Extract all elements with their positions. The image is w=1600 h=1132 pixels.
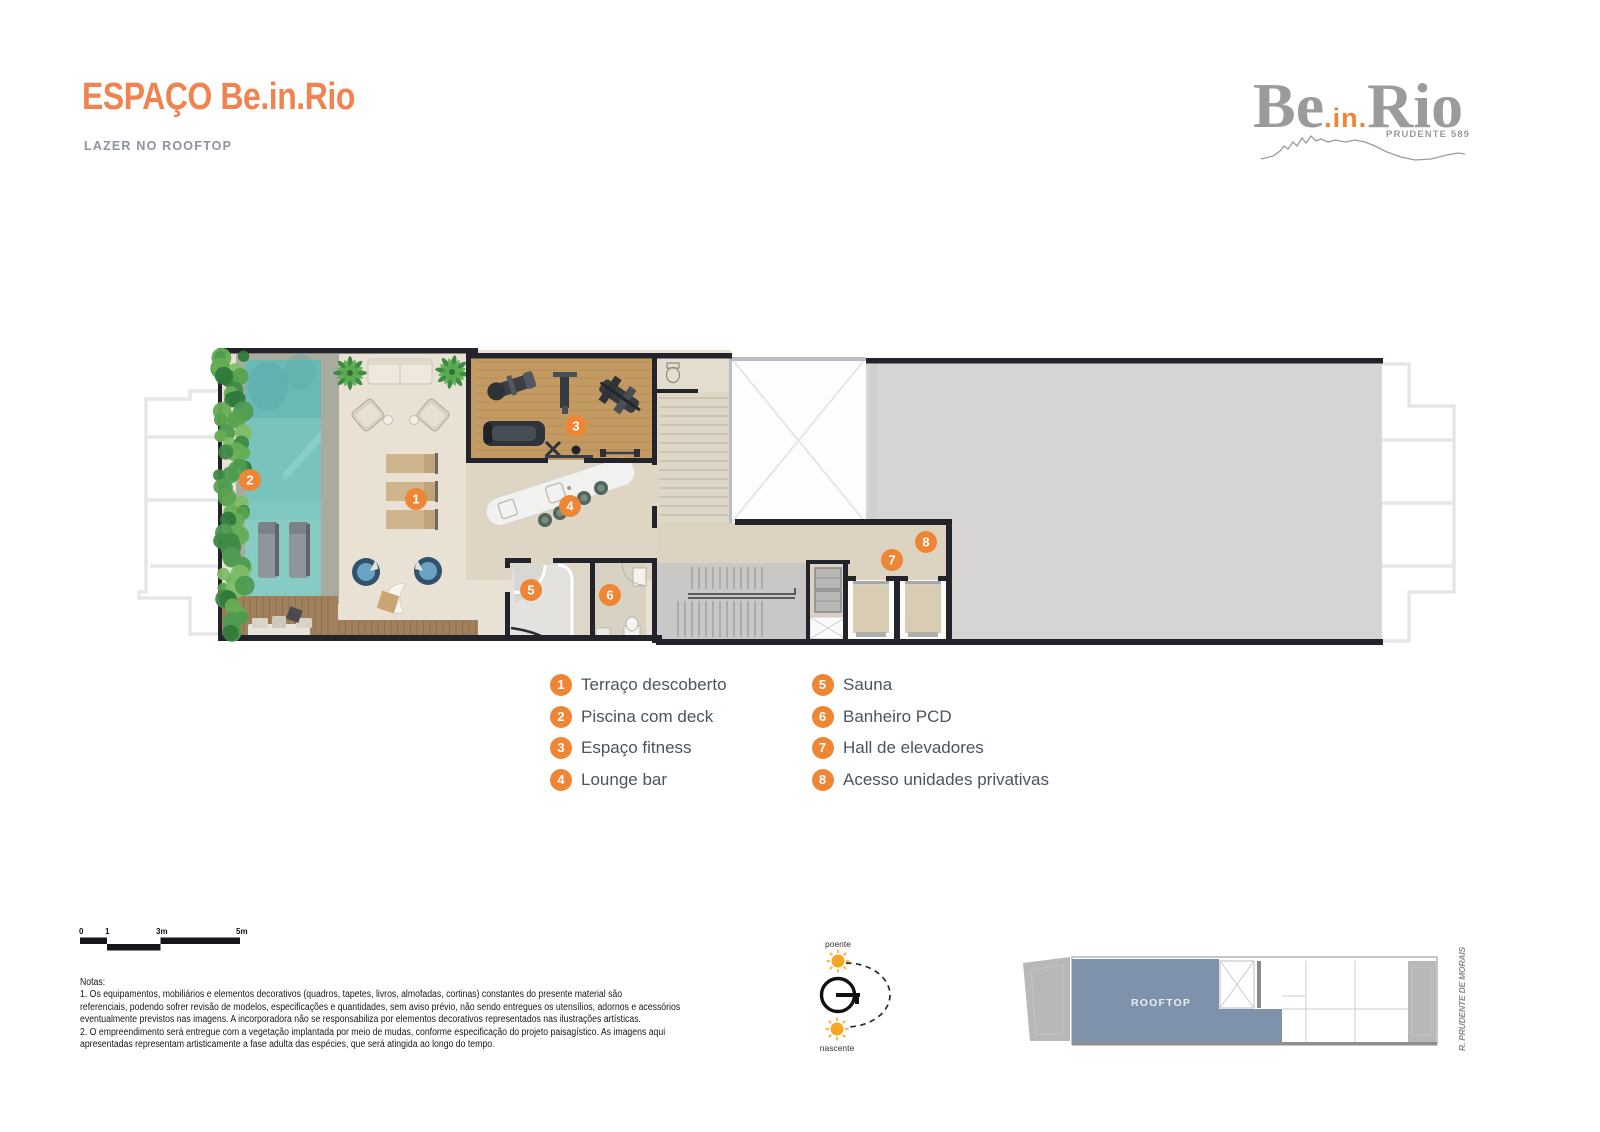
svg-text:6: 6 — [606, 588, 613, 603]
svg-text:5: 5 — [527, 583, 534, 598]
svg-text:5m: 5m — [236, 927, 248, 936]
svg-text:0: 0 — [79, 927, 84, 936]
svg-text:7: 7 — [888, 553, 895, 568]
svg-text:3: 3 — [572, 419, 579, 434]
svg-text:ROOFTOP: ROOFTOP — [1131, 997, 1191, 1009]
svg-text:1: 1 — [105, 927, 110, 936]
svg-text:R. PRUDENTE DE MORAIS: R. PRUDENTE DE MORAIS — [1457, 947, 1467, 1051]
svg-text:4: 4 — [566, 499, 574, 514]
svg-text:8: 8 — [922, 535, 929, 550]
svg-text:2: 2 — [246, 473, 253, 488]
svg-text:poente: poente — [825, 939, 851, 949]
svg-text:3m: 3m — [156, 927, 168, 936]
svg-text:nascente: nascente — [820, 1043, 855, 1053]
svg-text:1: 1 — [412, 492, 419, 507]
